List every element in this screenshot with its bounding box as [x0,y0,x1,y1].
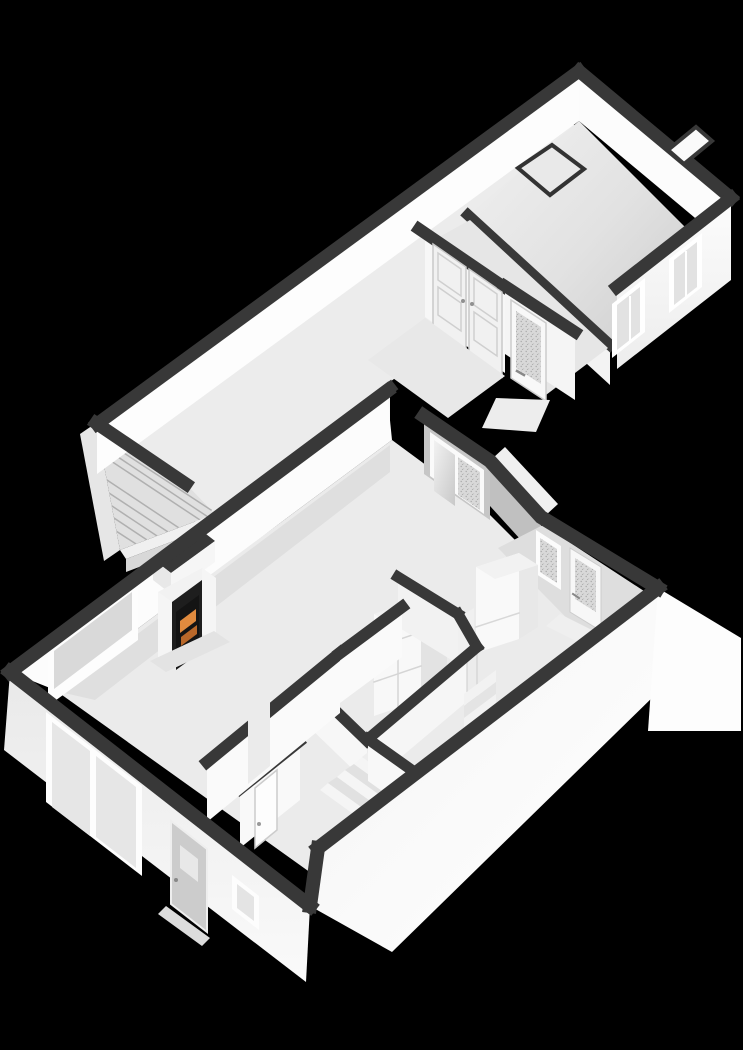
toilet-door-handle [257,822,261,826]
double-door-handle-right [470,302,474,306]
floorplan-3d-render: 3D floor plan render [0,0,743,1050]
double-door-handle-left [461,299,465,303]
south-corner-band [310,848,318,906]
front-door-handle [174,878,178,882]
floorplan-scene [0,0,743,1050]
